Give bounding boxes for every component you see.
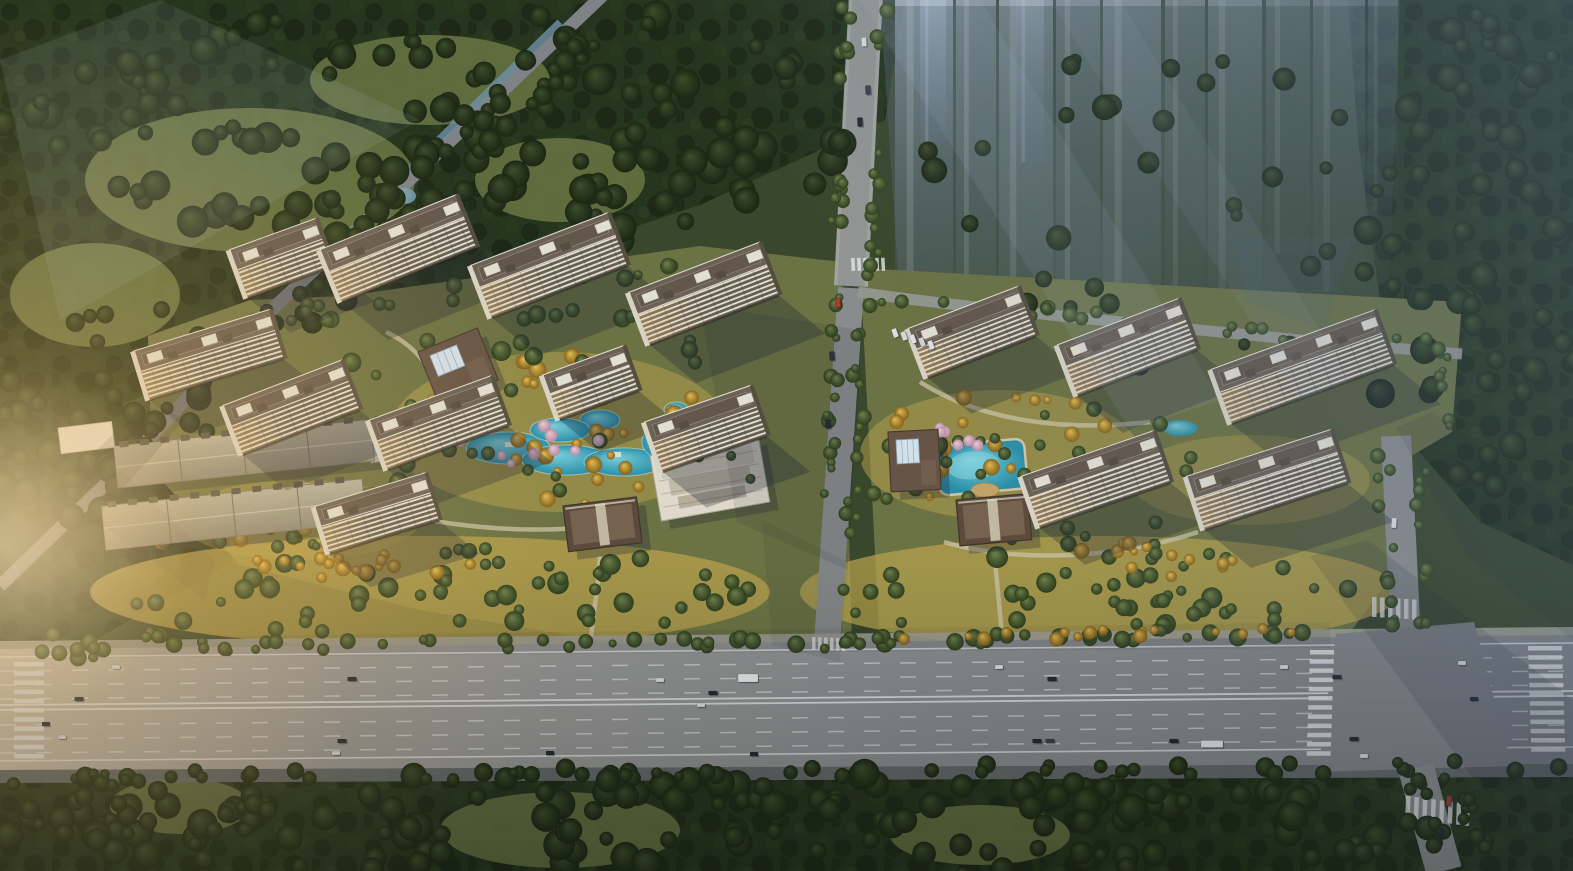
masterplan-aerial-scene (0, 0, 1573, 871)
aerial-render-image: Dusk aerial rendering of a master-planne… (0, 0, 1573, 871)
lighting-layer (0, 0, 1573, 871)
